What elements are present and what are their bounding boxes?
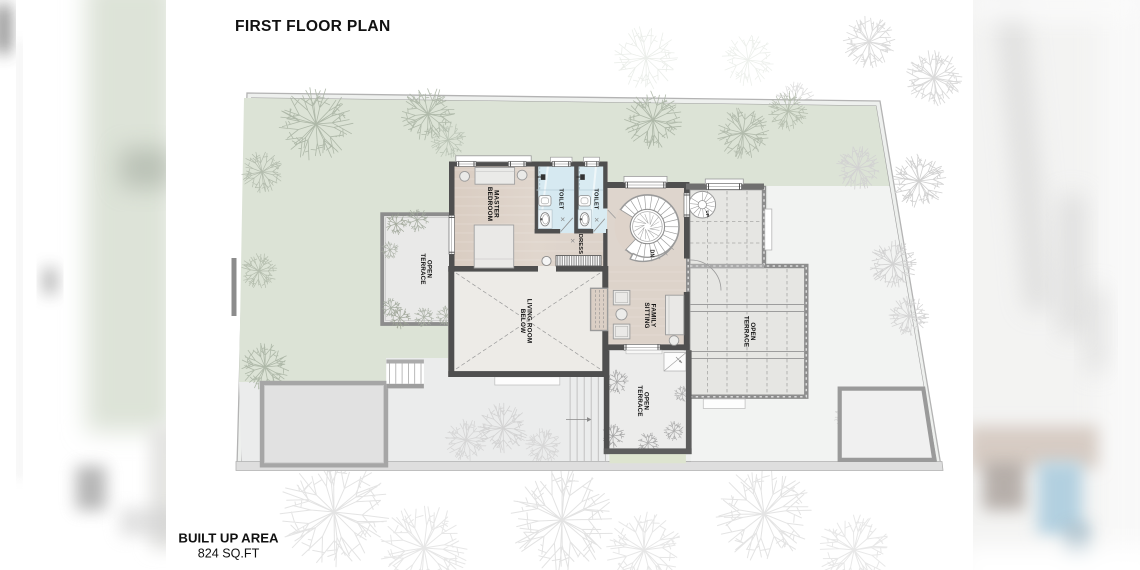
svg-text:TOILET: TOILET [558,189,564,210]
svg-text:DRESS: DRESS [577,234,583,254]
svg-text:TOILET: TOILET [593,189,599,210]
svg-text:824 SQ.FT: 824 SQ.FT [198,547,260,561]
svg-text:UP: UP [705,211,710,218]
svg-text:FAMILYSITTING: FAMILYSITTING [643,302,657,328]
svg-text:BUILT UP AREA: BUILT UP AREA [178,531,279,546]
svg-text:MASTERBEDROOM: MASTERBEDROOM [486,187,500,221]
svg-text:DN: DN [649,250,655,258]
svg-text:FIRST FLOOR PLAN: FIRST FLOOR PLAN [235,18,391,35]
